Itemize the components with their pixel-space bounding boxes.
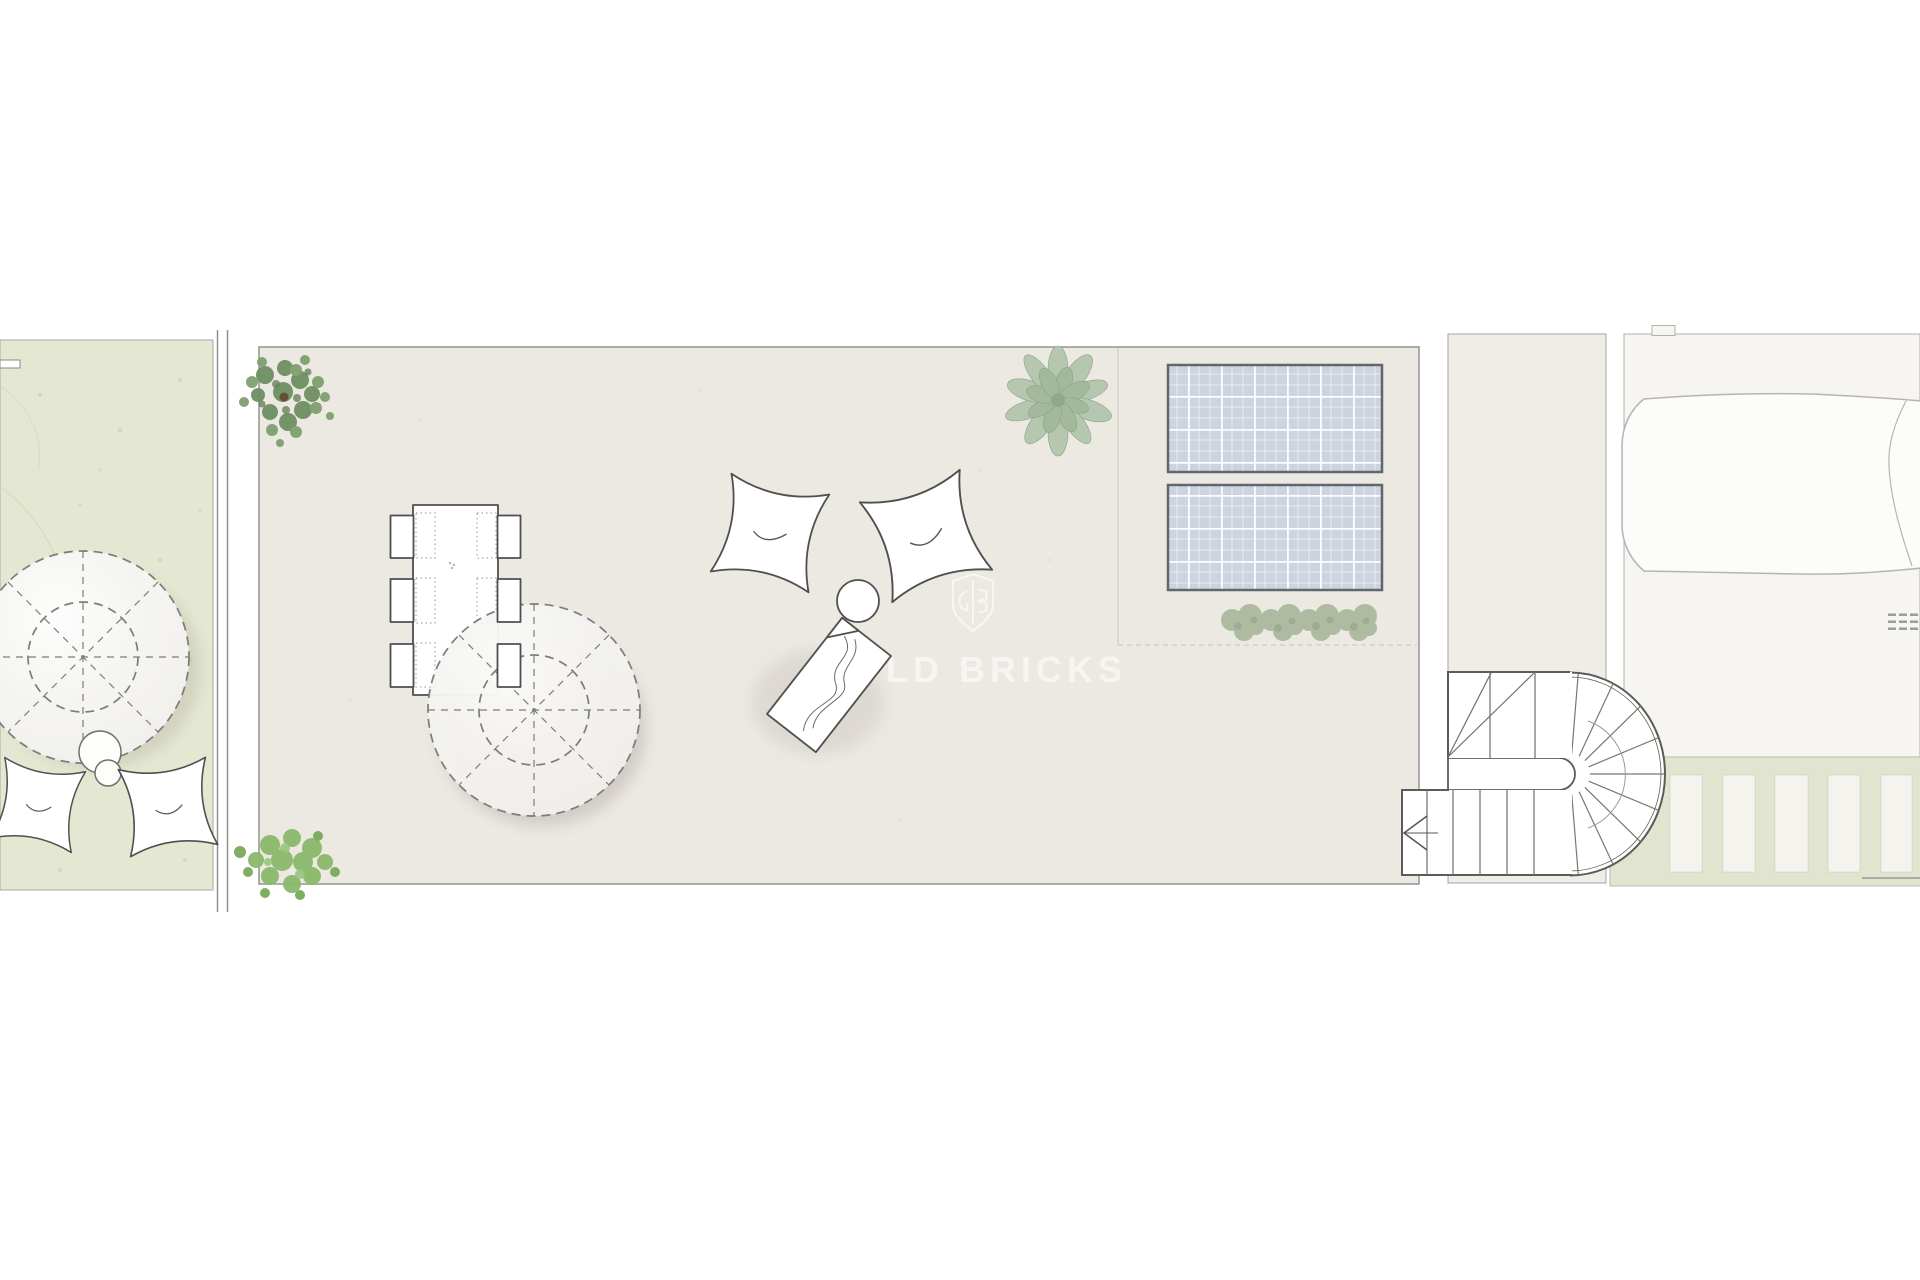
sun-lounger [752, 618, 891, 754]
plan-furniture-layer [0, 0, 1920, 1280]
garden-side-tables [79, 731, 121, 786]
terrace-cushion-left [711, 474, 830, 593]
roof-terrace-floor-plan: GOLD BRICKS [0, 0, 1920, 1280]
round-daybed [428, 604, 646, 826]
terrace-cushion-right [860, 470, 992, 602]
pouf-ball [837, 580, 879, 622]
garden-cushion-left [0, 758, 85, 853]
staircase [1402, 672, 1665, 876]
stair-divider [1448, 758, 1575, 790]
garden-cushion-right [118, 757, 217, 856]
